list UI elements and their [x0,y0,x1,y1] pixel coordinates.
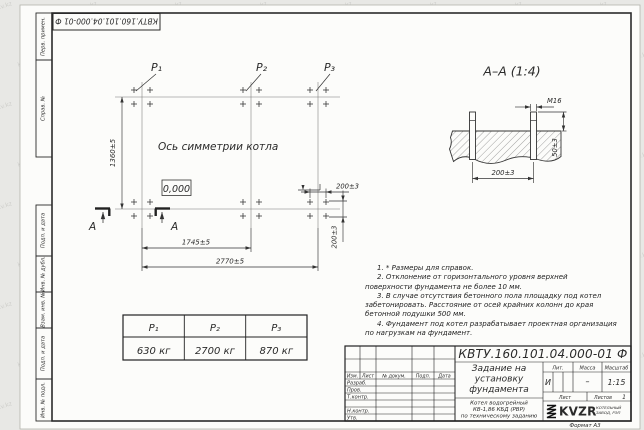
dim-label-m16: M16 [547,97,562,105]
notes-block: 1. * Размеры для справок. 2. Отклонение … [365,264,617,338]
doc-number: КВТУ.160.101.04.000-01 Ф [458,347,627,361]
note-2: 2. Отклонение от горизонтального уровня … [365,273,617,292]
plan-p2-label: P₂ [256,61,268,74]
col-podp: Подп. [416,374,431,380]
table-header-p2: P₂ [210,323,220,334]
logo-subtext-2: ЗАВОД, РЭП [596,410,620,415]
anchor-bolt-left [470,112,476,160]
sheet-label: Лист [558,395,571,401]
dim-label-2770: 2770±5 [216,258,245,266]
sidebar-label: Инв. № подл. [41,382,47,418]
scale-value: 1:15 [608,378,626,387]
note-3: 3. В случае отсутствия бетонного пола пл… [365,292,617,320]
table-value-p2: 2700 кг [195,346,236,357]
symmetry-axis-label: Ось симметрии котла [158,141,278,153]
dim-label-50: 50±3 [551,138,559,157]
note-4: 4. Фундамент под котел разрабатывает про… [365,320,617,339]
dim-label-200v: 200±3 [331,226,339,249]
table-value-p3: 870 кг [260,346,294,357]
col-data: Дата [437,374,450,380]
stamp-doc-number: КВТУ.160.101.04.000-01 Ф [55,16,158,25]
plan-p1-label: P₁ [151,61,162,74]
col-docnum: № докум. [381,374,406,380]
subtitle-line-2: КВ-1,86 КБД (РВР) [473,407,525,413]
subtitle-line-3: по техническому заданию [461,414,538,420]
sidebar-label: Взам. инв. № [41,292,47,327]
row-nkontr: Н.контр. [347,409,369,415]
table-value-p1: 630 кг [137,346,171,357]
drawing-sheet: kotlam-kv.kzkotlam-kv.kzkotlam-kv.kzkotl… [0,0,644,430]
format-label: Формат А3 [569,423,601,429]
section-letter-a2: A [170,221,178,233]
note-1: 1. * Размеры для справок. [365,264,617,273]
title-line-2: установку [474,375,524,385]
scale-header: Масштаб [605,366,629,372]
section-title: A–A (1:4) [482,64,540,79]
sidebar-label: Инв. № дубл. [41,256,47,292]
row-tkontr: Т.контр. [347,395,369,401]
row-prov: Пров. [347,388,362,394]
section-letter-a1: A [88,221,96,233]
sidebar-label: Перв. примен. [41,17,47,56]
sheets-value: 1 [622,394,626,401]
logo-text: KVZR [559,405,597,419]
lit-value: И [545,378,551,387]
dim-label-1745: 1745±5 [182,239,211,247]
lit-header: Лит. [551,366,564,372]
subtitle-line-1: Котел водогрейный [470,401,528,407]
row-utv: Утв. [347,416,358,422]
sidebar-label: Подп. и дата [41,336,47,371]
table-header-p3: P₃ [271,323,281,334]
mass-header: Масса [580,366,596,372]
anchor-bolt-right [531,112,537,160]
dim-label-200-section: 200±3 [492,169,515,177]
sidebar-label: Справ. № [41,96,47,121]
sidebar-label: Подп. и дата [41,213,47,248]
row-razrab: Разраб. [347,381,367,387]
level-mark-value: 0,000 [163,184,190,195]
plan-p3-label: P₃ [324,61,336,74]
col-list: Лист [361,374,374,380]
drawing-linework: КВТУ.160.101.04.000-01 Ф Перв. примен. С… [0,0,644,430]
title-line-1: Задание на [472,364,527,374]
table-header-p1: P₁ [149,323,159,334]
sheets-label: Листов [593,395,612,401]
title-line-3: фундамента [469,385,529,395]
col-izm: Изм. [347,374,358,380]
dim-label-1360: 1360±5 [109,138,117,167]
dim-label-200h: 200±3 [336,183,359,191]
mass-value: – [586,377,590,386]
